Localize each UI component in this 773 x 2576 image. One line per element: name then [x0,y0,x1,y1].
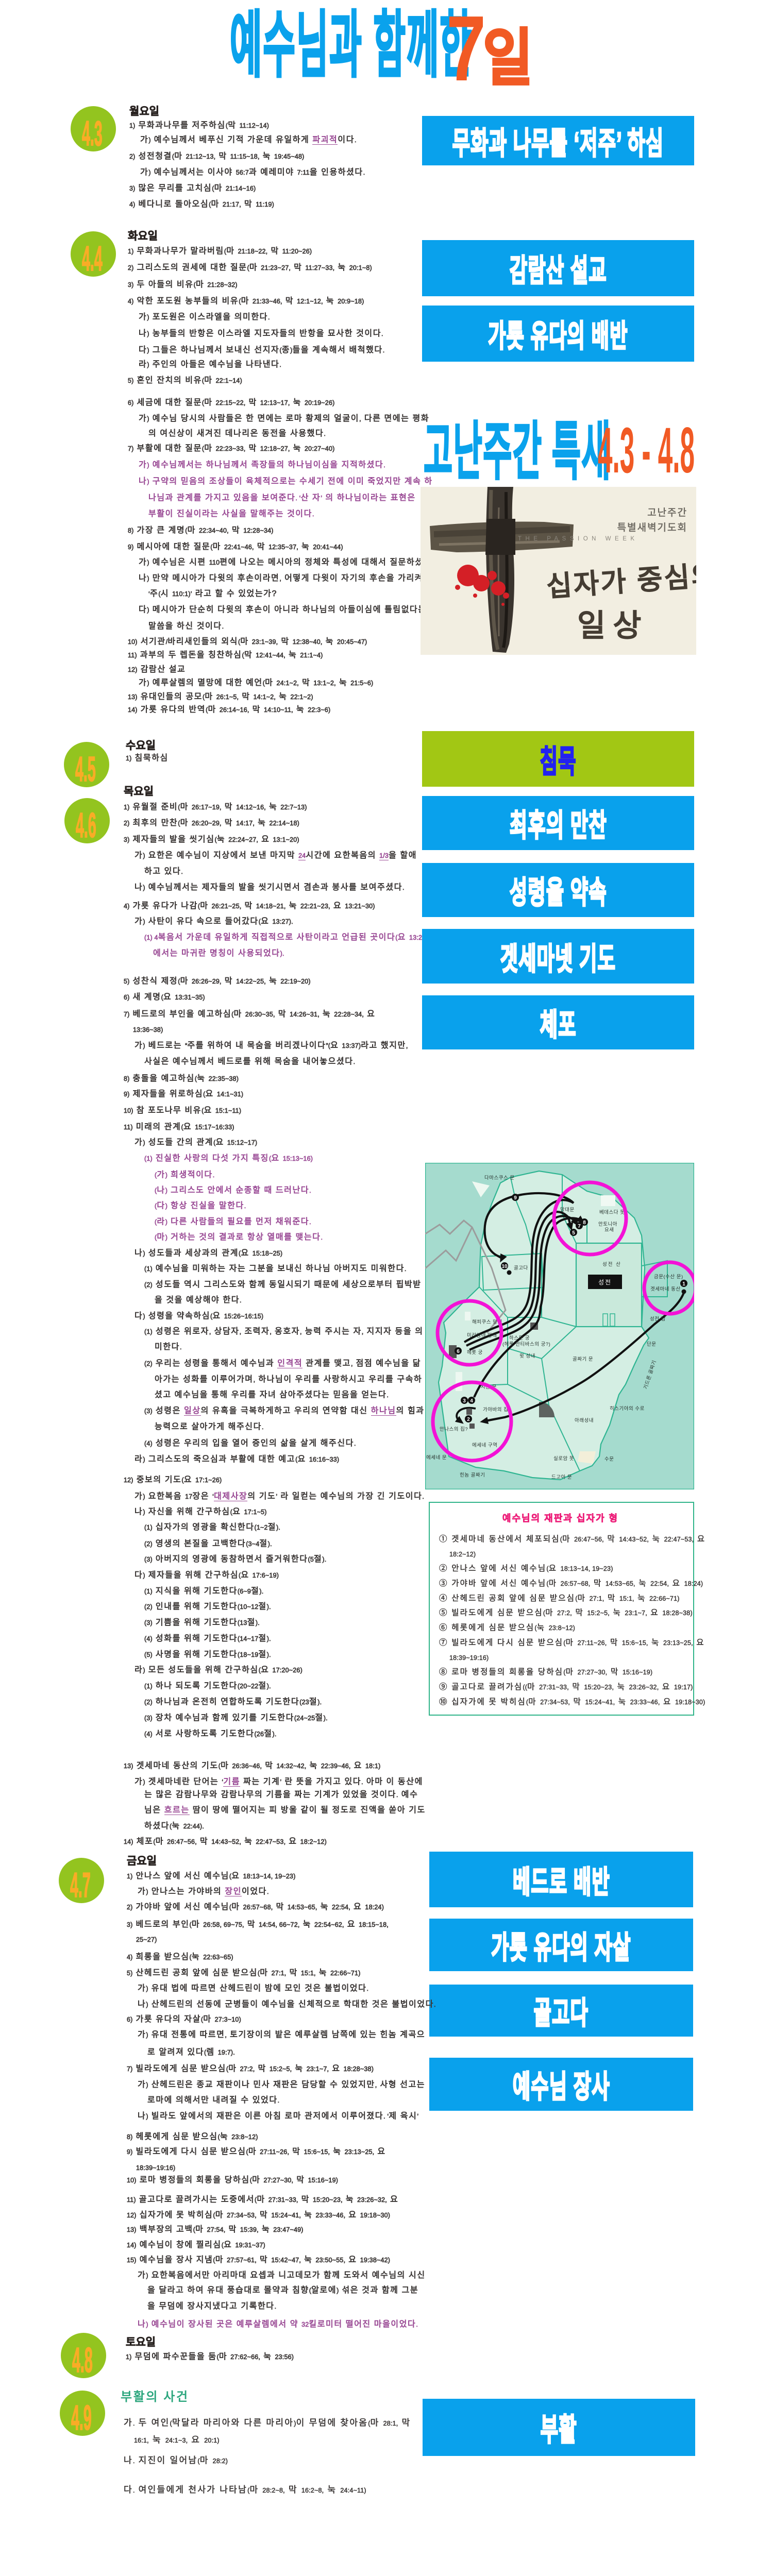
svg-text:미리암네 망대: 미리암네 망대 [467,1332,497,1338]
svg-text:10: 10 [501,1264,508,1269]
svg-text:골짜기 문: 골짜기 문 [573,1357,593,1362]
svg-text:(헤롯 안티바스의 궁?): (헤롯 안티바스의 궁?) [502,1341,550,1347]
svg-text:베데스다 못: 베데스다 못 [599,1210,625,1215]
svg-text:요새: 요새 [604,1227,614,1233]
svg-text:2: 2 [467,1417,470,1422]
svg-text:다마스쿠스 문: 다마스쿠스 문 [484,1175,515,1181]
svg-text:9: 9 [514,1195,517,1201]
svg-text:3: 3 [463,1398,466,1404]
svg-text:에세네 구역: 에세네 구역 [472,1443,497,1448]
svg-text:금문(수산 문): 금문(수산 문) [654,1274,683,1280]
svg-text:하스몬 궁: 하스몬 궁 [509,1335,530,1341]
svg-text:겟세마네 동산: 겟세마네 동산 [650,1286,681,1292]
svg-text:성전 산: 성전 산 [602,1262,621,1267]
svg-text:헤롯 궁: 헤롯 궁 [467,1349,483,1355]
svg-text:실로암 못: 실로암 못 [553,1455,574,1462]
svg-text:성전 탑: 성전 탑 [650,1316,666,1322]
svg-text:아래성내: 아래성내 [575,1418,594,1423]
svg-text:히스기야의 수로: 히스기야의 수로 [610,1406,645,1412]
svg-text:8: 8 [583,1220,586,1226]
svg-text:수문: 수문 [604,1456,614,1462]
svg-text:윗 성내: 윗 성내 [519,1353,535,1359]
svg-text:골고다: 골고다 [514,1265,528,1271]
svg-text:안토니아: 안토니아 [598,1222,617,1227]
svg-text:힌놈 골짜기: 힌놈 골짜기 [460,1472,485,1478]
svg-text:망대문: 망대문 [560,1207,575,1213]
svg-text:1: 1 [682,1281,685,1287]
svg-text:4: 4 [470,1398,473,1404]
svg-text:안나스의 집?: 안나스의 집? [440,1426,468,1432]
svg-text:5: 5 [572,1230,575,1236]
svg-text:성전: 성전 [598,1279,612,1286]
svg-text:단문: 단문 [647,1342,656,1347]
svg-text:6: 6 [457,1349,460,1354]
svg-text:에세네 문: 에세네 문 [426,1455,447,1461]
svg-text:7: 7 [578,1224,581,1229]
svg-text:드고아 문: 드고아 문 [551,1475,572,1480]
